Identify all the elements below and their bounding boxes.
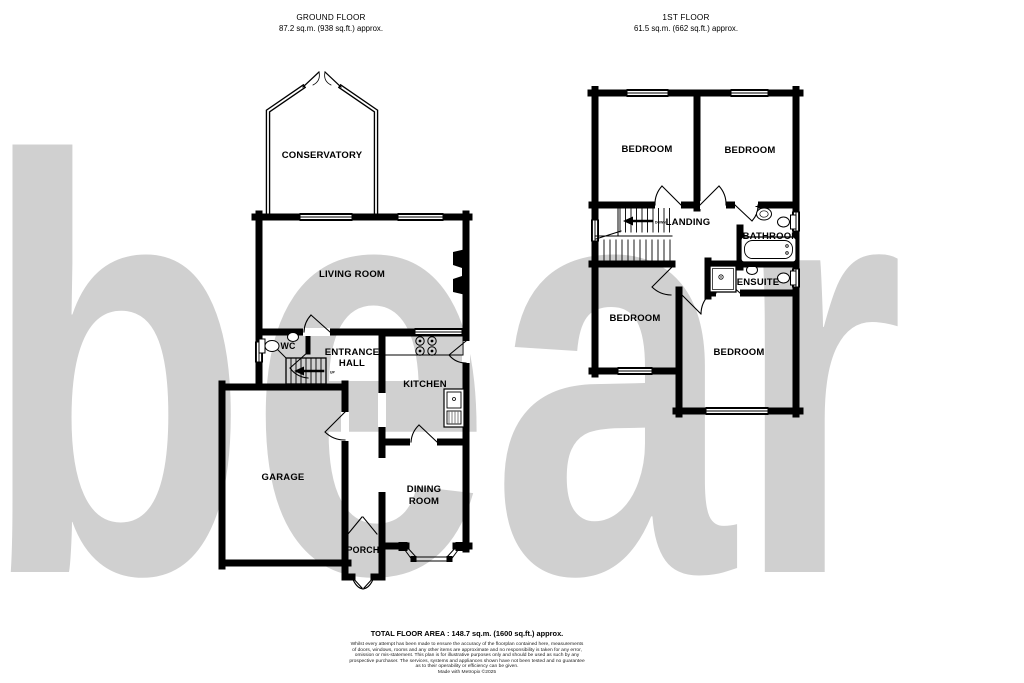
label-ensuite: ENSUITE: [737, 277, 780, 288]
window: [731, 90, 768, 97]
label-entrance-hall-1: ENTRANCE: [325, 347, 379, 358]
label-living-room: LIVING ROOM: [319, 269, 385, 280]
label-kitchen: KITCHEN: [403, 379, 447, 390]
label-bedroom-bottom-left: BEDROOM: [609, 313, 660, 324]
sink-unit-icon: [444, 389, 464, 427]
total-floor-area: TOTAL FLOOR AREA : 148.7 sq.m. (1600 sq.…: [217, 629, 717, 638]
basin-icon: [746, 266, 758, 275]
watermark-text: bear: [0, 38, 904, 683]
label-conservatory: CONSERVATORY: [282, 150, 363, 161]
label-garage: GARAGE: [262, 472, 305, 483]
window: [627, 90, 668, 97]
window: [415, 329, 462, 336]
label-wc: WC: [280, 341, 296, 351]
label-bedroom-top-right: BEDROOM: [724, 145, 775, 156]
label-dining-room-1: DINING: [407, 484, 441, 495]
label-bedroom-top-left: BEDROOM: [621, 144, 672, 155]
label-bathroom: BATHROOM: [743, 231, 800, 242]
label-porch: PORCH: [347, 545, 380, 555]
credit-line: Made with Metropix ©2025: [217, 670, 717, 676]
label-stairs-down: DOWN: [655, 221, 666, 225]
footer: TOTAL FLOOR AREA : 148.7 sq.m. (1600 sq.…: [217, 629, 717, 676]
shower-icon: [710, 266, 736, 292]
label-landing: LANDING: [666, 217, 711, 228]
window: [618, 368, 652, 375]
floorplan-page: { "watermark": { "text": "bear", "color"…: [0, 0, 1024, 683]
floorplan-canvas: bear: [0, 0, 1024, 683]
label-dining-room-2: ROOM: [409, 496, 439, 507]
disclaimer: Whilst every attempt has been made to en…: [217, 642, 717, 676]
window: [398, 214, 443, 221]
label-entrance-hall-2: HALL: [339, 358, 365, 369]
window: [592, 220, 599, 241]
label-bedroom-bottom-right: BEDROOM: [713, 347, 764, 358]
window: [300, 214, 352, 221]
toilet-icon: [259, 339, 279, 353]
window: [706, 408, 768, 415]
label-stairs-up: UP: [330, 371, 335, 375]
